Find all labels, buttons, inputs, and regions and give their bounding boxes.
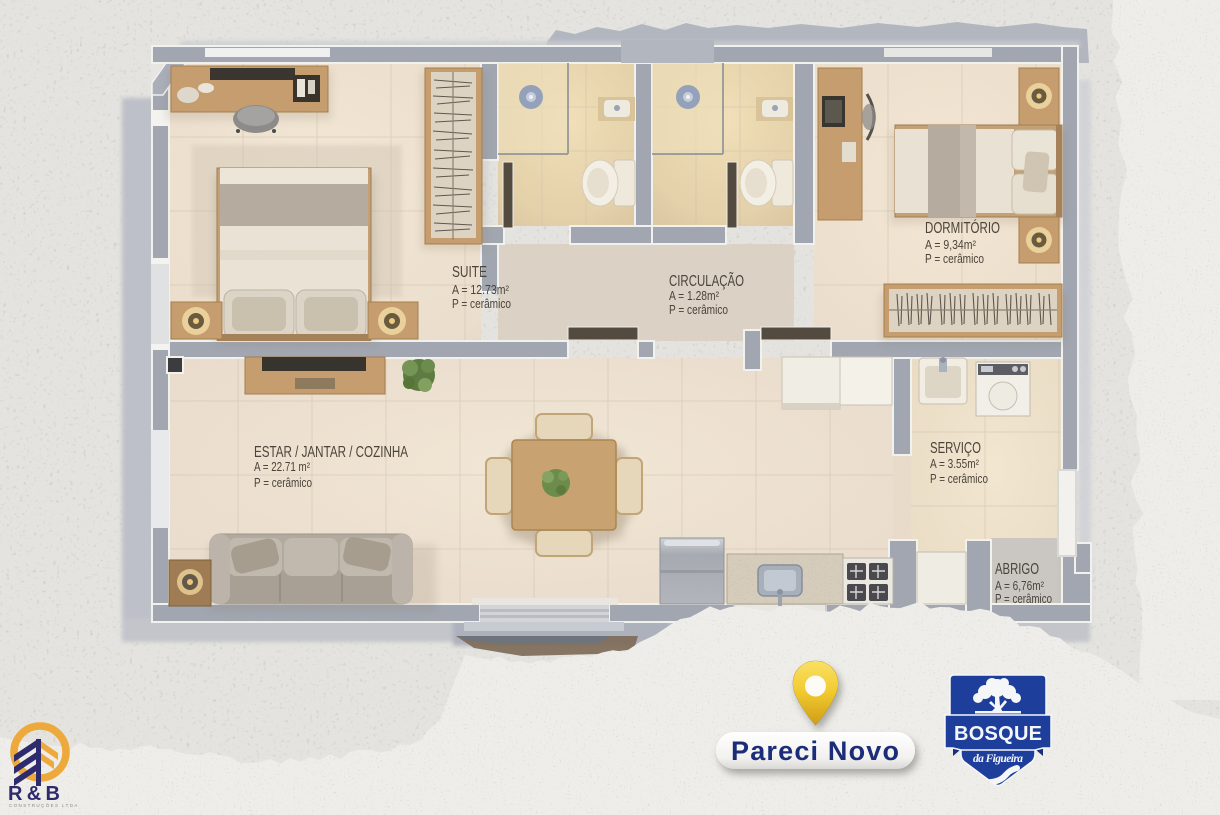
svg-text:CONSTRUÇÕES LTDA: CONSTRUÇÕES LTDA bbox=[9, 802, 79, 808]
svg-text:BOSQUE: BOSQUE bbox=[954, 723, 1042, 745]
svg-text:SUITE: SUITE bbox=[452, 264, 487, 281]
svg-text:SERVIÇO: SERVIÇO bbox=[930, 440, 981, 457]
svg-text:A = 9,34m²: A = 9,34m² bbox=[925, 238, 976, 252]
svg-text:A = 3.55m²: A = 3.55m² bbox=[930, 457, 979, 471]
svg-text:A = 22.71 m²: A = 22.71 m² bbox=[254, 460, 310, 474]
svg-text:R&B: R&B bbox=[8, 783, 60, 805]
svg-text:A = 6,76m²: A = 6,76m² bbox=[995, 579, 1044, 593]
svg-text:ABRIGO: ABRIGO bbox=[995, 561, 1039, 578]
svg-text:da Figueira: da Figueira bbox=[973, 753, 1023, 765]
svg-text:A = 1.28m²: A = 1.28m² bbox=[669, 289, 719, 303]
svg-text:P = cerâmico: P = cerâmico bbox=[995, 592, 1052, 606]
svg-text:DORMITÓRIO: DORMITÓRIO bbox=[925, 220, 1000, 237]
svg-text:P = cerâmico: P = cerâmico bbox=[452, 297, 511, 311]
svg-text:P = cerâmico: P = cerâmico bbox=[669, 303, 728, 317]
svg-text:P = cerâmico: P = cerâmico bbox=[930, 472, 988, 486]
svg-text:A = 12.73m²: A = 12.73m² bbox=[452, 283, 509, 297]
svg-text:P = cerâmico: P = cerâmico bbox=[925, 252, 984, 266]
svg-text:ESTAR / JANTAR / COZINHA: ESTAR / JANTAR / COZINHA bbox=[254, 444, 408, 461]
svg-text:CIRCULAÇÃO: CIRCULAÇÃO bbox=[669, 273, 744, 290]
svg-text:Pareci Novo: Pareci Novo bbox=[731, 736, 899, 766]
svg-text:P = cerâmico: P = cerâmico bbox=[254, 476, 312, 490]
